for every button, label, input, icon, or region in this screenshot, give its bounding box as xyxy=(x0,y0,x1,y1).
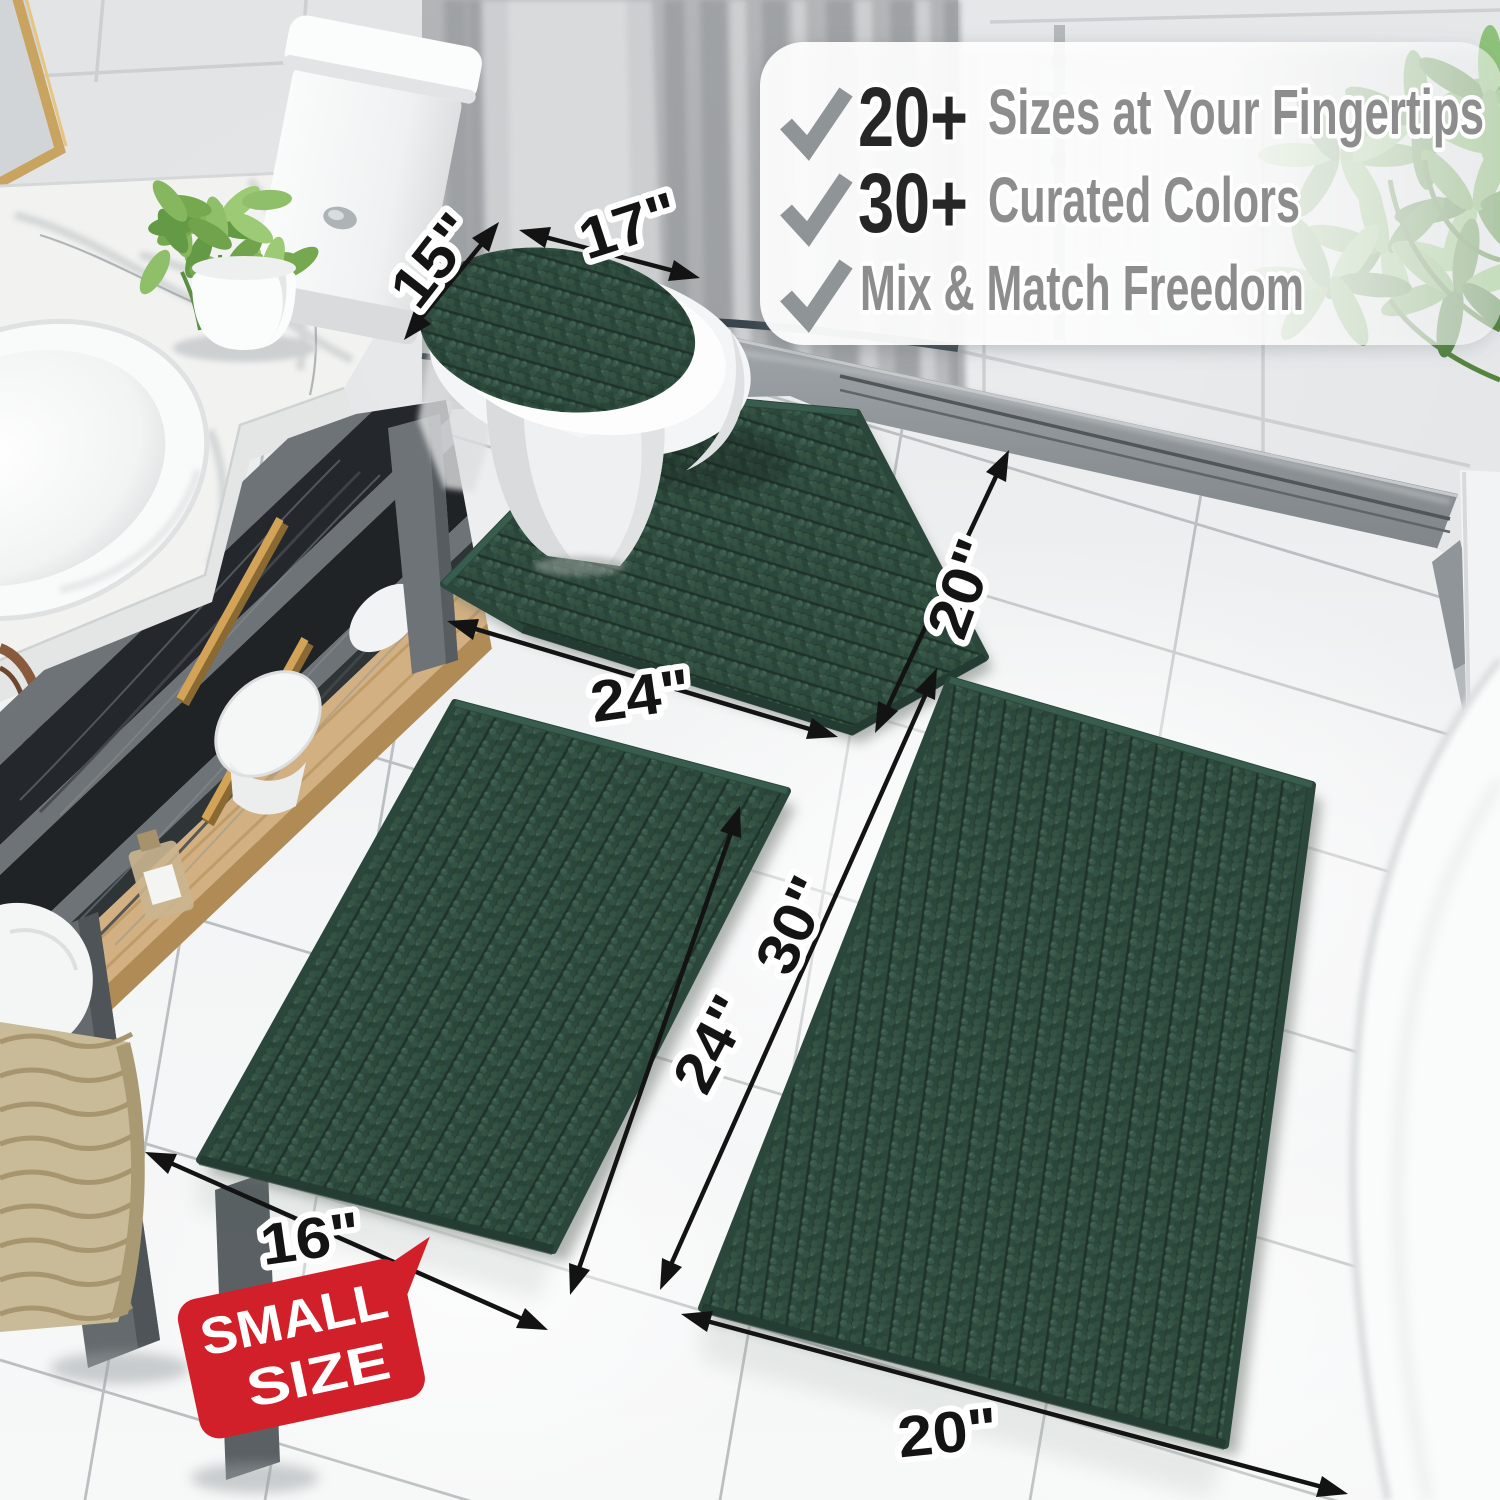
svg-text:20+: 20+ xyxy=(858,70,968,164)
svg-text:20": 20" xyxy=(894,1395,1000,1470)
svg-text:Mix & Match Freedom: Mix & Match Freedom xyxy=(860,252,1304,324)
svg-text:Curated Colors: Curated Colors xyxy=(988,164,1300,236)
svg-text:Sizes at Your Fingertips: Sizes at Your Fingertips xyxy=(988,76,1484,148)
svg-text:30+: 30+ xyxy=(858,156,968,250)
svg-text:24": 24" xyxy=(586,657,694,735)
